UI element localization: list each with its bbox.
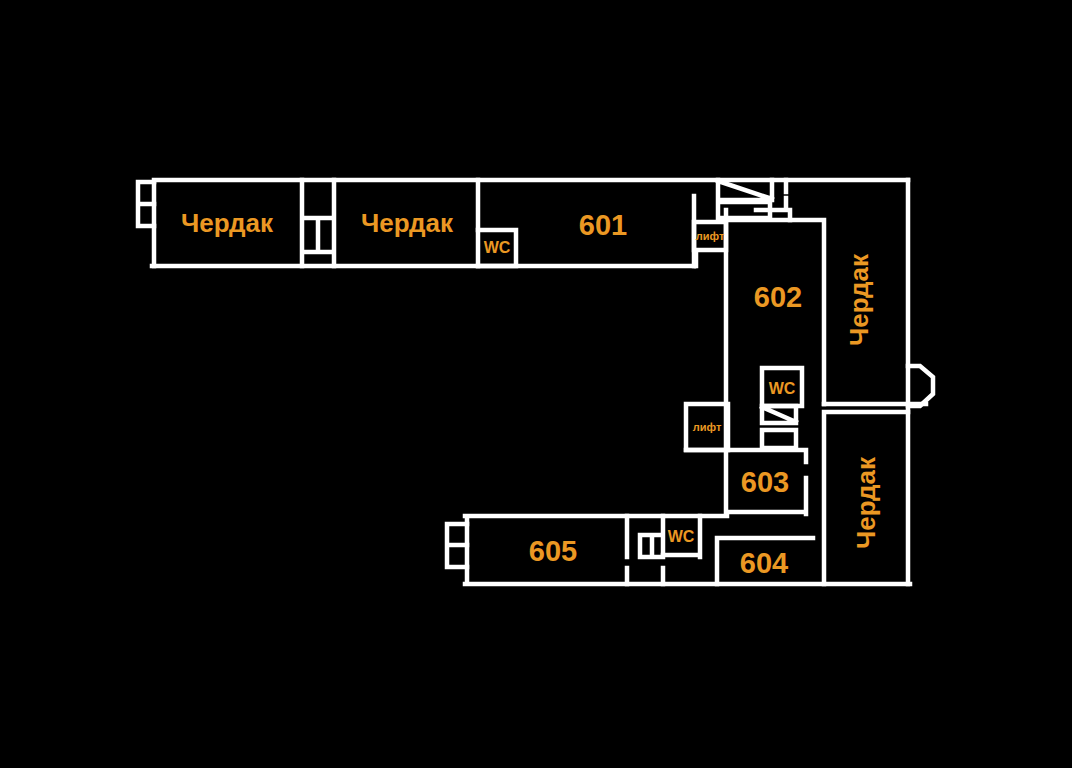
label-attic-right-upper: Чердак bbox=[844, 253, 874, 346]
label-room-605: 605 bbox=[529, 535, 577, 567]
floor-plan-background bbox=[0, 0, 1072, 768]
label-room-604: 604 bbox=[740, 547, 788, 579]
label-attic-top-left: Чердак bbox=[181, 208, 274, 238]
label-room-602: 602 bbox=[754, 281, 802, 313]
label-room-601: 601 bbox=[579, 209, 627, 241]
label-lift-mid: лифт bbox=[693, 421, 722, 433]
label-wc-mid: WC bbox=[769, 380, 796, 397]
floor-plan: Чердак Чердак 601 WC лифт 602 Чердак WC … bbox=[0, 0, 1072, 768]
label-lift-top: лифт bbox=[696, 230, 725, 242]
label-wc-top: WC bbox=[484, 239, 511, 256]
label-room-603: 603 bbox=[741, 466, 789, 498]
label-attic-right-lower: Чердак bbox=[851, 456, 881, 549]
label-attic-top-mid: Чердак bbox=[361, 208, 454, 238]
label-wc-bottom: WC bbox=[668, 528, 695, 545]
